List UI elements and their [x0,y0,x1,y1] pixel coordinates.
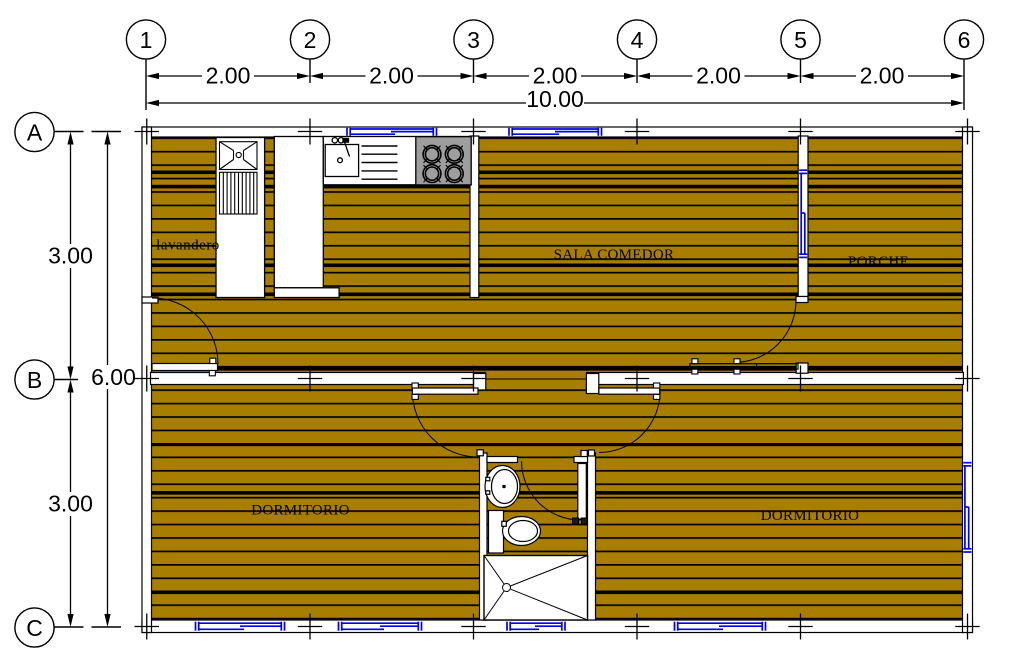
svg-text:2: 2 [304,27,317,53]
svg-text:2.00: 2.00 [696,63,741,89]
svg-text:3: 3 [467,27,480,53]
svg-text:2.00: 2.00 [369,63,414,89]
svg-text:DORMITORIO: DORMITORIO [761,508,860,524]
svg-text:10.00: 10.00 [526,86,584,112]
svg-text:6.00: 6.00 [91,364,136,390]
svg-text:2.00: 2.00 [860,63,905,89]
svg-text:B: B [27,367,42,393]
svg-text:3.00: 3.00 [48,491,93,517]
svg-text:3.00: 3.00 [48,243,93,269]
svg-text:DORMITORIO: DORMITORIO [251,503,350,519]
svg-text:A: A [27,120,43,146]
svg-text:6: 6 [958,27,971,53]
svg-text:2.00: 2.00 [533,63,578,89]
svg-text:2.00: 2.00 [206,63,251,89]
svg-text:4: 4 [631,27,644,53]
svg-text:5: 5 [794,27,807,53]
svg-text:lavandero: lavandero [156,238,220,254]
svg-text:PORCHE: PORCHE [848,254,909,270]
svg-text:C: C [26,615,43,641]
svg-text:SALA COMEDOR: SALA COMEDOR [554,247,675,263]
svg-text:1: 1 [140,27,153,53]
